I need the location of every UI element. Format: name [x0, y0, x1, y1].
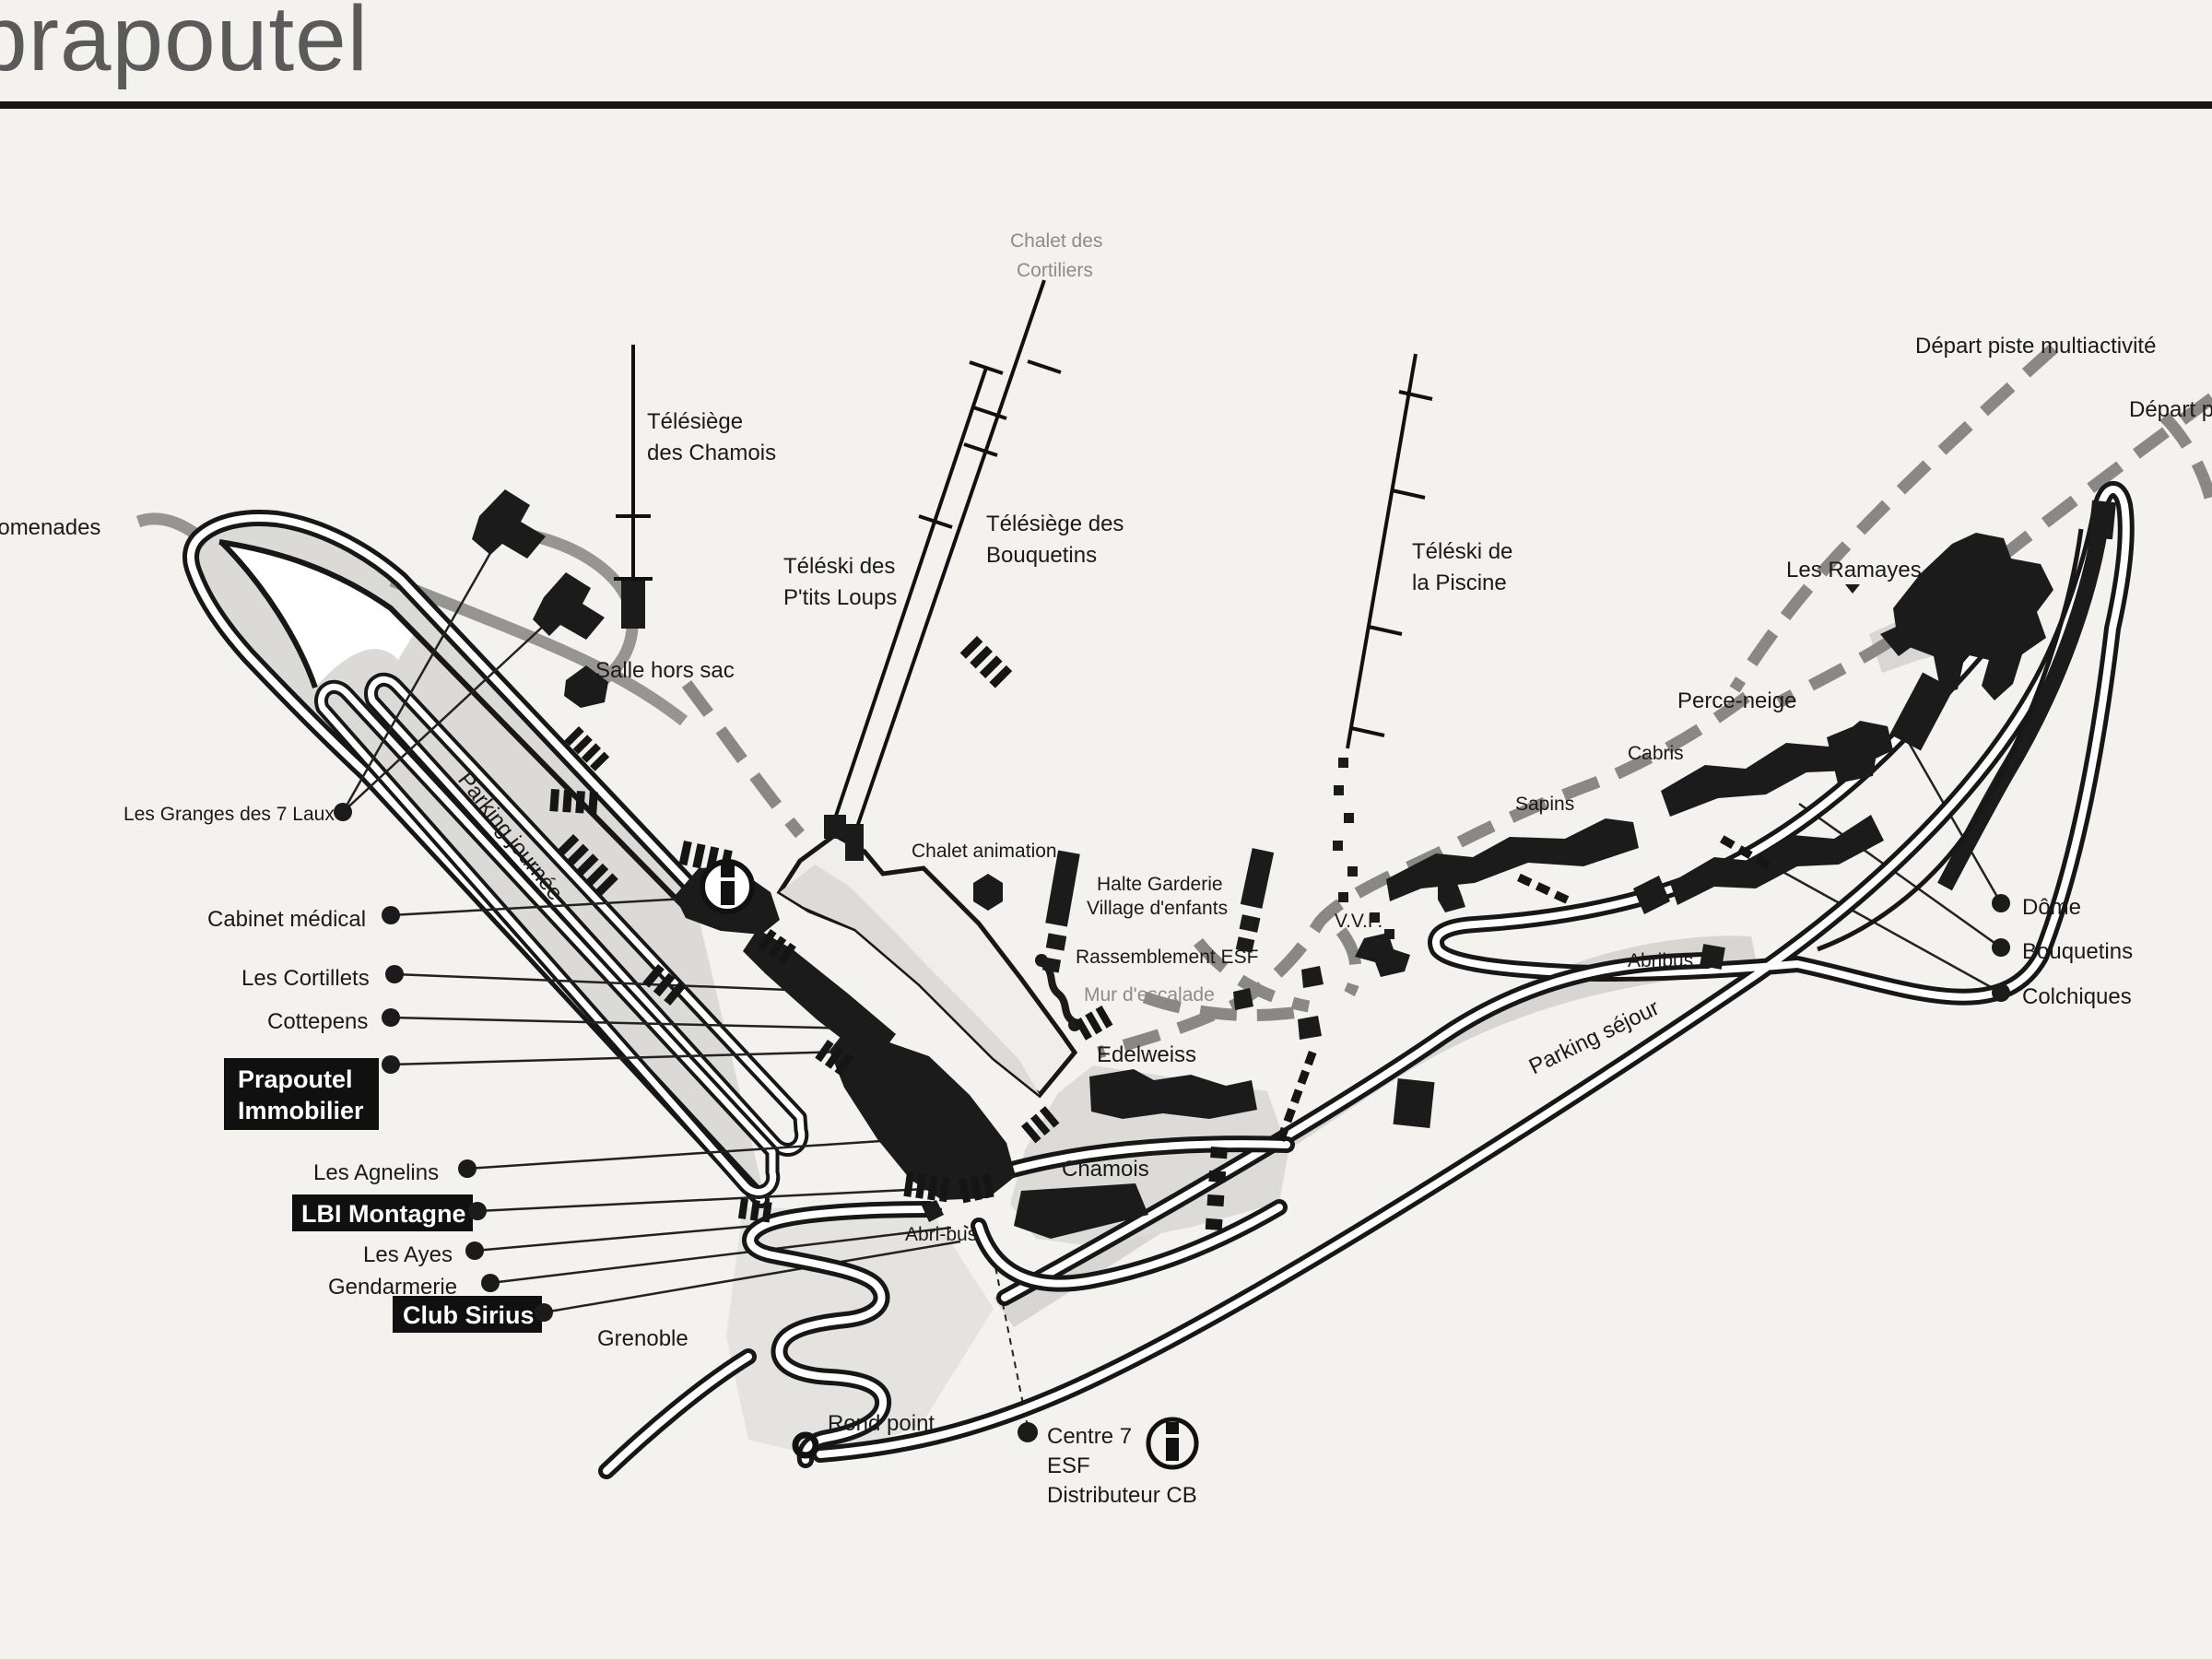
svg-text:Cabris: Cabris	[1628, 743, 1684, 764]
svg-text:Colchiques: Colchiques	[2022, 984, 2132, 1009]
svg-text:Mur d'escalade: Mur d'escalade	[1084, 984, 1215, 1006]
svg-text:Centre 7: Centre 7	[1047, 1424, 1132, 1449]
svg-text:Télésiège des: Télésiège des	[986, 512, 1124, 536]
svg-text:Téléski des: Téléski des	[783, 554, 895, 579]
svg-text:Perce-neige: Perce-neige	[1677, 688, 1796, 713]
svg-text:Abribus: Abribus	[1628, 950, 1693, 971]
svg-text:Distributeur CB: Distributeur CB	[1047, 1483, 1197, 1508]
svg-text:Téléski de: Téléski de	[1412, 539, 1512, 564]
svg-text:prapoutel: prapoutel	[0, 0, 369, 90]
svg-text:Télésiège: Télésiège	[647, 409, 743, 434]
svg-text:Abri-bus: Abri-bus	[905, 1224, 977, 1245]
svg-text:Salle hors sac: Salle hors sac	[595, 658, 735, 683]
svg-text:Cortiliers: Cortiliers	[1017, 260, 1093, 281]
svg-text:P'tits Loups: P'tits Loups	[783, 585, 897, 610]
svg-text:Village d'enfants: Village d'enfants	[1087, 898, 1228, 919]
svg-text:Cottepens: Cottepens	[267, 1009, 368, 1034]
svg-text:Chalet animation: Chalet animation	[912, 841, 1057, 862]
svg-text:Départ piste multiactivité: Départ piste multiactivité	[1915, 334, 2156, 359]
svg-text:Gendarmerie: Gendarmerie	[328, 1275, 457, 1300]
svg-text:Chamois: Chamois	[1062, 1157, 1149, 1182]
svg-text:promenades: promenades	[0, 515, 100, 540]
svg-text:Bouquetins: Bouquetins	[2022, 939, 2133, 964]
svg-text:la Piscine: la Piscine	[1412, 571, 1507, 595]
svg-text:Les Granges des 7 Laux: Les Granges des 7 Laux	[124, 804, 335, 825]
svg-text:LBI Montagne: LBI Montagne	[301, 1200, 465, 1228]
svg-text:Rond point: Rond point	[828, 1411, 935, 1436]
svg-text:des Chamois: des Chamois	[647, 441, 776, 465]
svg-text:ESF: ESF	[1047, 1453, 1090, 1478]
svg-text:Les Agnelins: Les Agnelins	[313, 1160, 439, 1185]
svg-text:Dôme: Dôme	[2022, 895, 2081, 920]
svg-text:Sapins: Sapins	[1515, 794, 1574, 815]
svg-text:Edelweiss: Edelweiss	[1097, 1042, 1196, 1067]
svg-text:V.V.F.: V.V.F.	[1335, 911, 1382, 932]
svg-text:Cabinet médical: Cabinet médical	[207, 907, 366, 932]
svg-text:Les Ayes: Les Ayes	[363, 1242, 453, 1267]
svg-text:Club Sirius: Club Sirius	[403, 1301, 535, 1329]
svg-text:Bouquetins: Bouquetins	[986, 543, 1097, 568]
svg-text:Grenoble: Grenoble	[597, 1326, 688, 1351]
svg-text:Prapoutel: Prapoutel	[238, 1065, 353, 1093]
svg-text:Chalet des: Chalet des	[1010, 230, 1102, 252]
svg-text:Immobilier: Immobilier	[238, 1097, 364, 1124]
svg-text:Rassemblement ESF: Rassemblement ESF	[1076, 947, 1258, 968]
svg-text:Les Cortillets: Les Cortillets	[241, 966, 370, 991]
svg-text:Les Ramayes: Les Ramayes	[1786, 558, 1922, 582]
svg-text:Halte Garderie: Halte Garderie	[1097, 874, 1223, 895]
svg-text:Départ p: Départ p	[2129, 397, 2212, 422]
